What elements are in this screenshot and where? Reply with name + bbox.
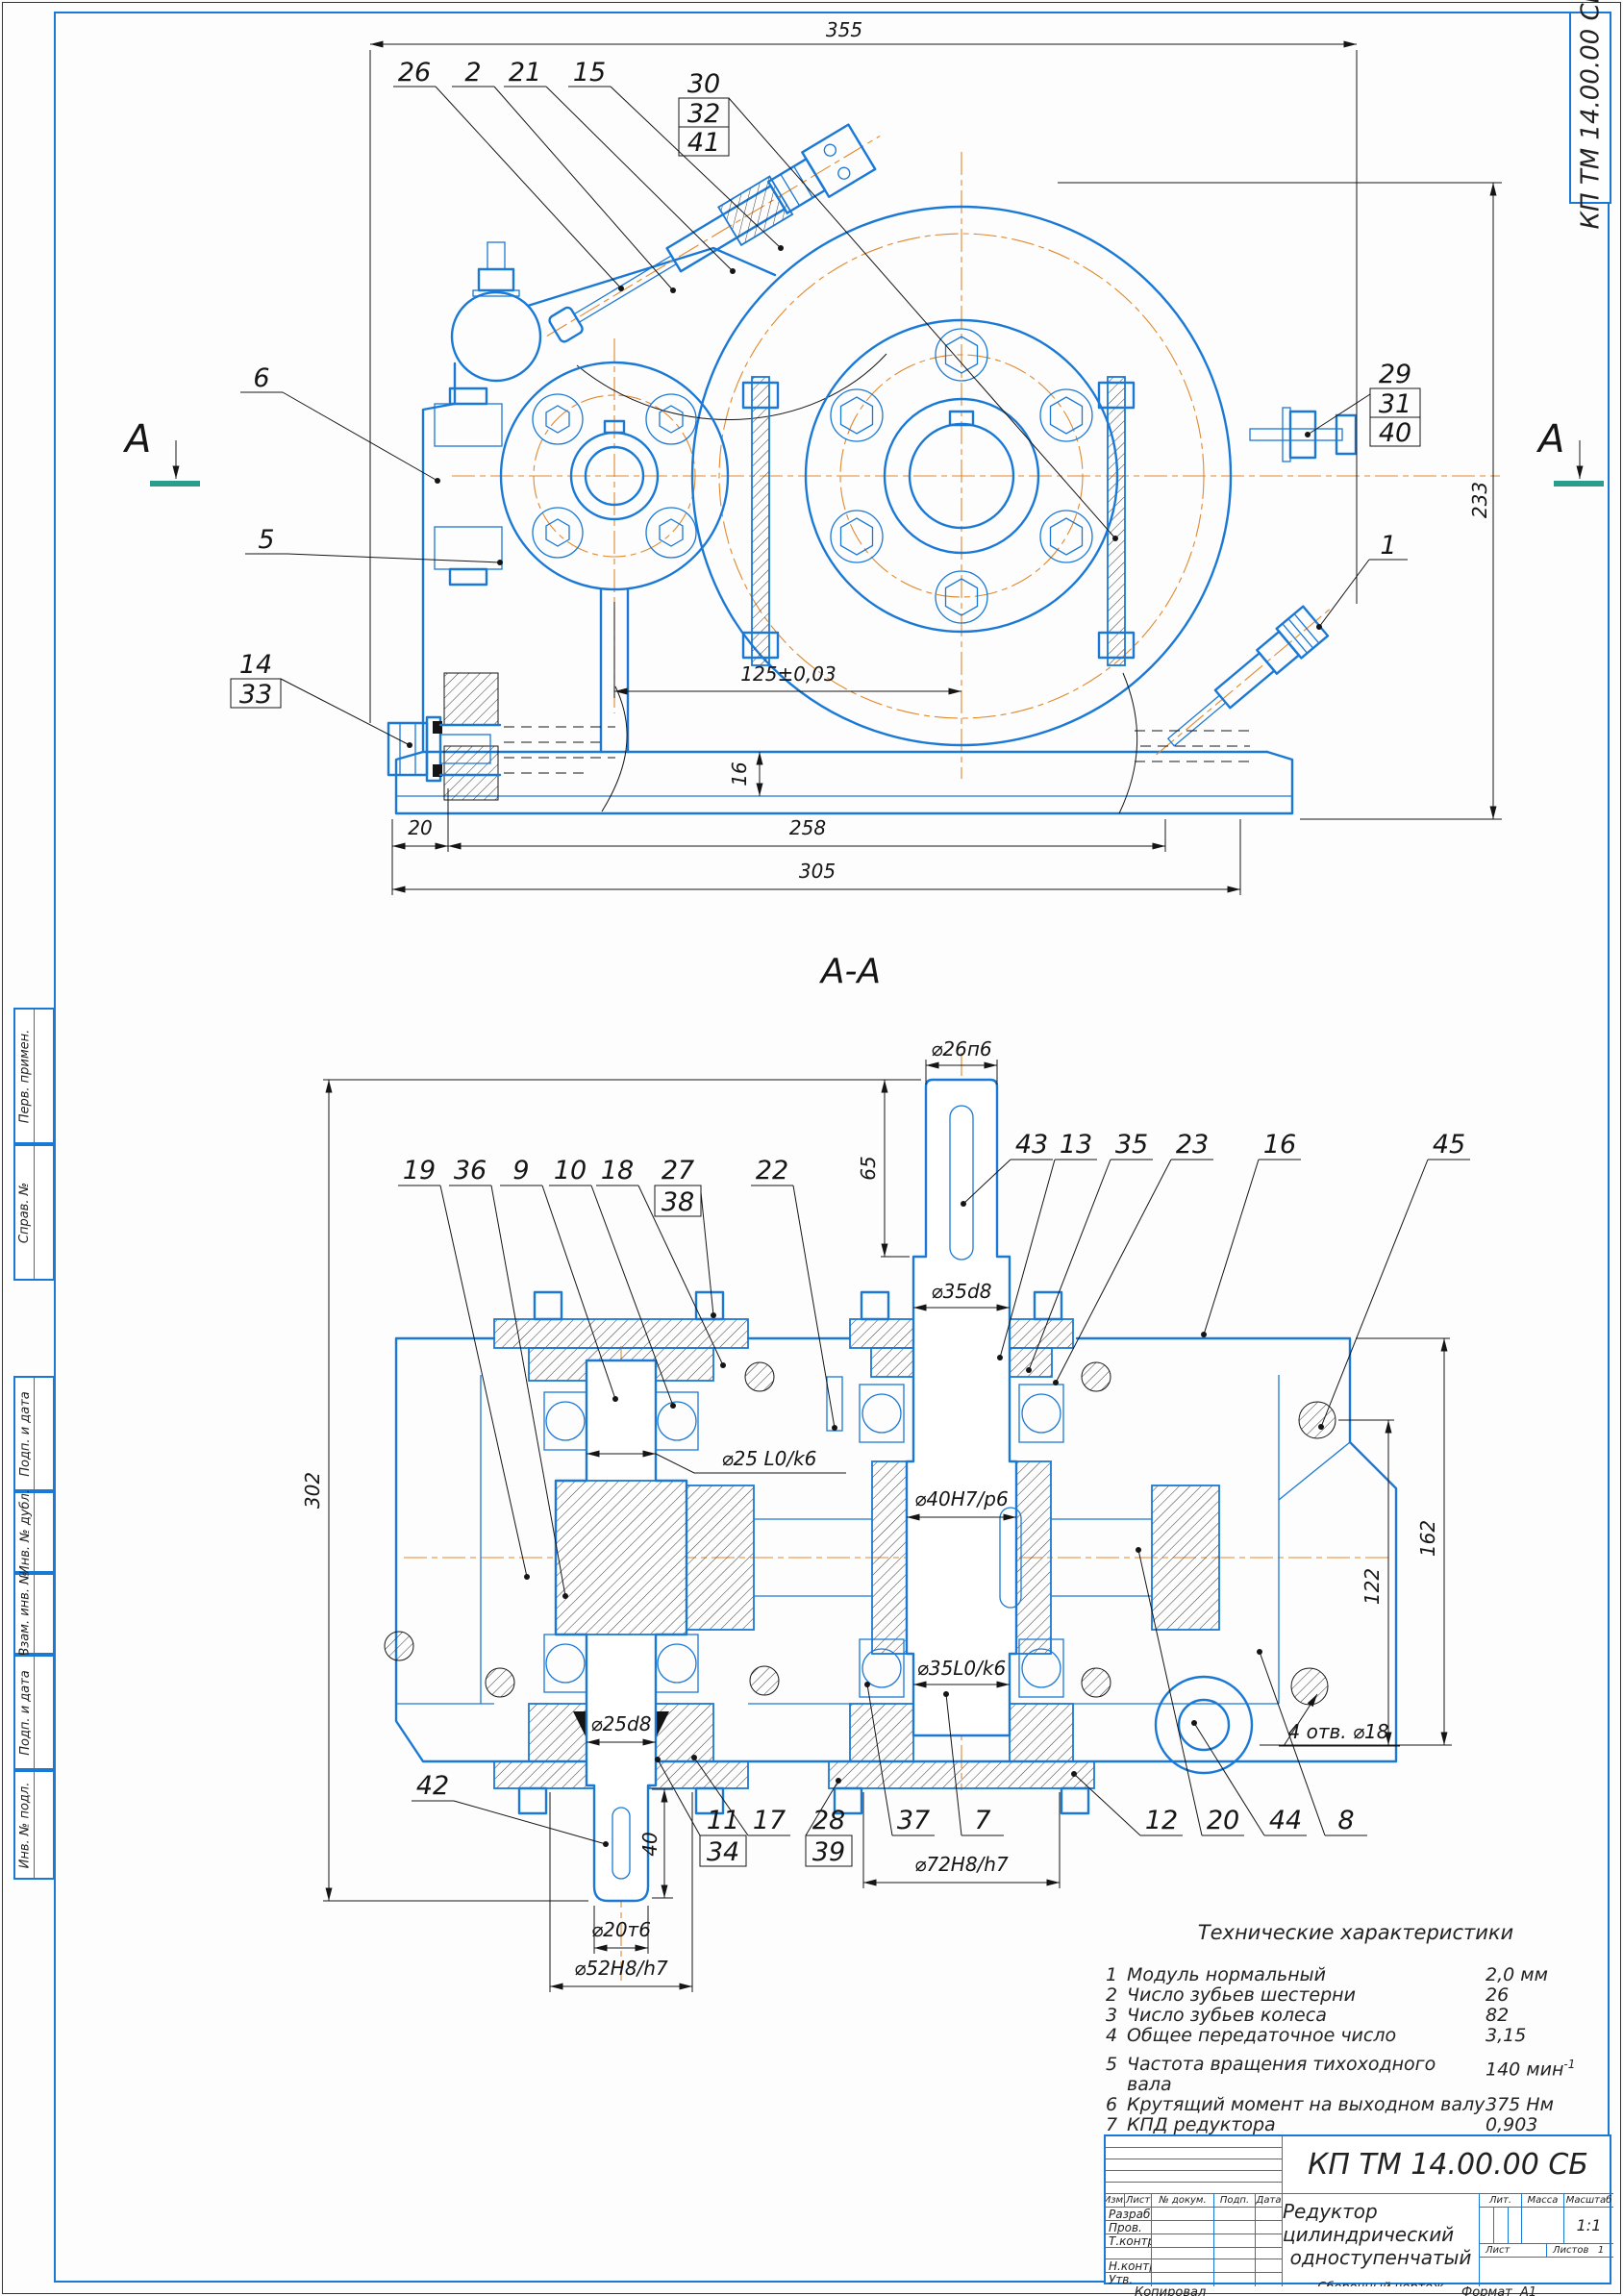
svg-text:28: 28 — [812, 1806, 845, 1835]
callout-1: 1 — [1380, 531, 1396, 561]
svg-text:34: 34 — [707, 1837, 739, 1867]
lbl-massa: Масса — [1522, 2194, 1564, 2208]
col-data: Дата — [1256, 2194, 1283, 2208]
corner-stamp-text: КП ТМ 14.00.00 СБ — [1576, 0, 1605, 229]
callout-stack-27-38: 27 38 — [655, 1156, 716, 1318]
tech-row: 2Число зубьев шестерни26 — [1106, 1985, 1606, 2006]
tech-row: 5Частота вращения тихоходного вала140 ми… — [1106, 2055, 1606, 2095]
svg-text:41: 41 — [687, 128, 720, 158]
row-razrab: Разраб. — [1106, 2208, 1152, 2221]
callout-26: 26 — [398, 58, 431, 87]
tech-specs: Технические характеристики 1Модуль норма… — [1106, 1921, 1606, 2135]
kopiroval-label: Копировал — [1135, 2285, 1206, 2296]
row-utv: Утв. — [1106, 2273, 1152, 2286]
dim-40: 40 — [638, 1832, 662, 1856]
dim-355: 355 — [826, 18, 862, 41]
col-podp: Подп. — [1214, 2194, 1256, 2208]
svg-text:29: 29 — [1379, 360, 1411, 389]
callout-stack-30-32-41: 30 32 41 — [679, 69, 1118, 541]
side-cell-inv-dubl: Инв. № дубл. — [13, 1491, 55, 1573]
format-label: Формат А1 — [1461, 2285, 1536, 2296]
lbl-listov: Листов 1 — [1547, 2244, 1613, 2258]
oil-drain-plug — [388, 673, 627, 811]
row-nkontr: Н.контр. — [1106, 2259, 1152, 2273]
front-view: А А 355 233 125±0,03 — [122, 18, 1604, 895]
side-cell-perv-primen: Перв. примен. — [13, 1008, 55, 1144]
input-shaft-flange — [501, 362, 728, 589]
section-title: А-А — [819, 952, 881, 991]
scale-value: 1:1 — [1564, 2208, 1613, 2244]
dim-302: 302 — [301, 1472, 324, 1509]
lbl-lit: Лит. — [1480, 2194, 1522, 2208]
svg-text:11: 11 — [707, 1806, 739, 1835]
svg-text:33: 33 — [239, 680, 272, 710]
tech-row: 1Модуль нормальный2,0 мм — [1106, 1965, 1606, 1985]
product-name-2: одноступенчатый — [1290, 2246, 1472, 2269]
corner-stamp: КП ТМ 14.00.00 СБ — [1569, 12, 1611, 204]
tech-title: Технические характеристики — [1106, 1921, 1606, 1944]
dim-20m6: ⌀20т6 — [591, 1918, 651, 1941]
tech-row: 6Крутящий момент на выходном валу375 Нм — [1106, 2095, 1606, 2115]
side-cell-vzam: Взам. инв. № — [13, 1573, 55, 1655]
callout-9: 9 — [512, 1156, 529, 1185]
row-prov: Пров. — [1106, 2221, 1152, 2234]
product-name-cell: Редуктор цилиндрический одноступенчатый … — [1283, 2194, 1480, 2286]
side-cell-podp2: Подп. и дата — [13, 1655, 55, 1770]
tech-row: 4Общее передаточное число3,15 — [1106, 2026, 1606, 2046]
svg-text:32: 32 — [687, 99, 720, 129]
callout-7: 7 — [974, 1806, 990, 1835]
svg-text:39: 39 — [812, 1837, 845, 1867]
callout-21: 21 — [509, 58, 541, 87]
dim-16: 16 — [728, 761, 751, 786]
callout-13: 13 — [1060, 1130, 1092, 1160]
col-ndoc: № докум. — [1152, 2194, 1214, 2208]
callout-15: 15 — [573, 58, 606, 87]
pinion-shaft — [556, 1360, 687, 1901]
svg-text:27: 27 — [662, 1156, 694, 1185]
dim-26p6: ⌀26п6 — [931, 1037, 991, 1061]
lbl-masshtab: Масштаб — [1564, 2194, 1613, 2208]
dim-125: 125±0,03 — [740, 662, 836, 686]
tech-row: 3Число зубьев колеса82 — [1106, 2006, 1606, 2026]
section-letter-left: А — [122, 417, 151, 462]
doc-type: Сборочный чертеж — [1317, 2281, 1444, 2286]
dim-40hp: ⌀40H7/p6 — [914, 1487, 1008, 1510]
callout-6: 6 — [253, 363, 269, 393]
oil-level-dashes — [504, 727, 615, 773]
doc-number: КП ТМ 14.00.00 СБ — [1283, 2136, 1613, 2194]
dim-52h8: ⌀52H8/h7 — [574, 1957, 668, 1980]
callout-20: 20 — [1207, 1806, 1239, 1835]
dim-holes: 4 отв. ⌀18 — [1288, 1720, 1389, 1743]
dowel-pin — [827, 1377, 842, 1431]
callout-35: 35 — [1115, 1130, 1148, 1160]
callouts-front: 26 2 21 15 30 32 41 6 5 — [231, 58, 1420, 748]
lbl-list: Лист — [1480, 2244, 1547, 2258]
callout-stack-28-39: 28 39 — [806, 1778, 852, 1867]
section-letter-right: А — [1536, 417, 1564, 462]
callout-45: 45 — [1433, 1130, 1465, 1160]
drawing-sheet: А А 355 233 125±0,03 — [0, 0, 1623, 2296]
clamp-studs — [743, 377, 1134, 665]
callout-stack-29-31-40: 29 31 40 — [1305, 360, 1420, 448]
svg-text:14: 14 — [239, 650, 272, 680]
callout-22: 22 — [756, 1156, 788, 1185]
callout-5: 5 — [258, 525, 274, 555]
side-cover-bolt — [1250, 408, 1356, 462]
callout-16: 16 — [1263, 1130, 1296, 1160]
svg-text:38: 38 — [662, 1187, 694, 1217]
dim-25d8: ⌀25d8 — [591, 1712, 652, 1735]
dim-162: 162 — [1416, 1520, 1439, 1557]
col-list: Лист — [1125, 2194, 1152, 2208]
dim-20: 20 — [408, 816, 432, 839]
tech-row: 7КПД редуктора0,903 — [1106, 2115, 1606, 2135]
col-izm: Изм. — [1106, 2194, 1125, 2208]
callout-10: 10 — [554, 1156, 587, 1185]
callout-19: 19 — [403, 1156, 436, 1185]
svg-text:30: 30 — [687, 69, 720, 99]
callout-17: 17 — [753, 1806, 786, 1835]
format-value: А1 — [1520, 2285, 1536, 2296]
dim-65: 65 — [857, 1156, 880, 1180]
title-block: Изм. Лист № докум. Подп. Дата Разраб. Пр… — [1104, 2134, 1611, 2284]
callout-2: 2 — [464, 58, 481, 87]
svg-text:31: 31 — [1379, 389, 1411, 419]
callout-12: 12 — [1145, 1806, 1178, 1835]
callout-36: 36 — [454, 1156, 487, 1185]
dim-25lk: ⌀25 L0/k6 — [722, 1447, 817, 1470]
section-view: ⌀26п6 65 ⌀35d8 302 ⌀25 L0/k6 ⌀40H7/p6 ⌀3… — [301, 1037, 1470, 1992]
side-cell-sprav: Справ. № — [13, 1144, 55, 1281]
dim-233: 233 — [1468, 482, 1491, 518]
svg-text:40: 40 — [1379, 418, 1411, 448]
oil-dashes-right — [1135, 731, 1256, 761]
dim-35lk: ⌀35L0/k6 — [917, 1657, 1006, 1680]
dim-258: 258 — [789, 816, 826, 839]
wheel-shaft — [907, 1080, 1021, 1735]
callout-23: 23 — [1176, 1130, 1209, 1160]
callout-37: 37 — [897, 1806, 930, 1835]
callout-43: 43 — [1015, 1130, 1048, 1160]
callout-42: 42 — [416, 1771, 449, 1801]
callout-stack-14-33: 14 33 — [231, 650, 412, 748]
side-cell-podp1: Подп. и дата — [13, 1376, 55, 1491]
callout-44: 44 — [1269, 1806, 1302, 1835]
dim-305: 305 — [799, 860, 836, 883]
side-cell-inv-podl: Инв. № подл. — [13, 1770, 55, 1880]
callout-8: 8 — [1337, 1806, 1354, 1835]
dim-35d8: ⌀35d8 — [932, 1280, 992, 1303]
row-tkontr: Т.контр. — [1106, 2234, 1152, 2248]
product-name-1: Редуктор цилиндрический — [1283, 2200, 1479, 2246]
dim-122: 122 — [1361, 1568, 1384, 1605]
callout-18: 18 — [601, 1156, 634, 1185]
dim-72h8: ⌀72H8/h7 — [914, 1853, 1009, 1876]
